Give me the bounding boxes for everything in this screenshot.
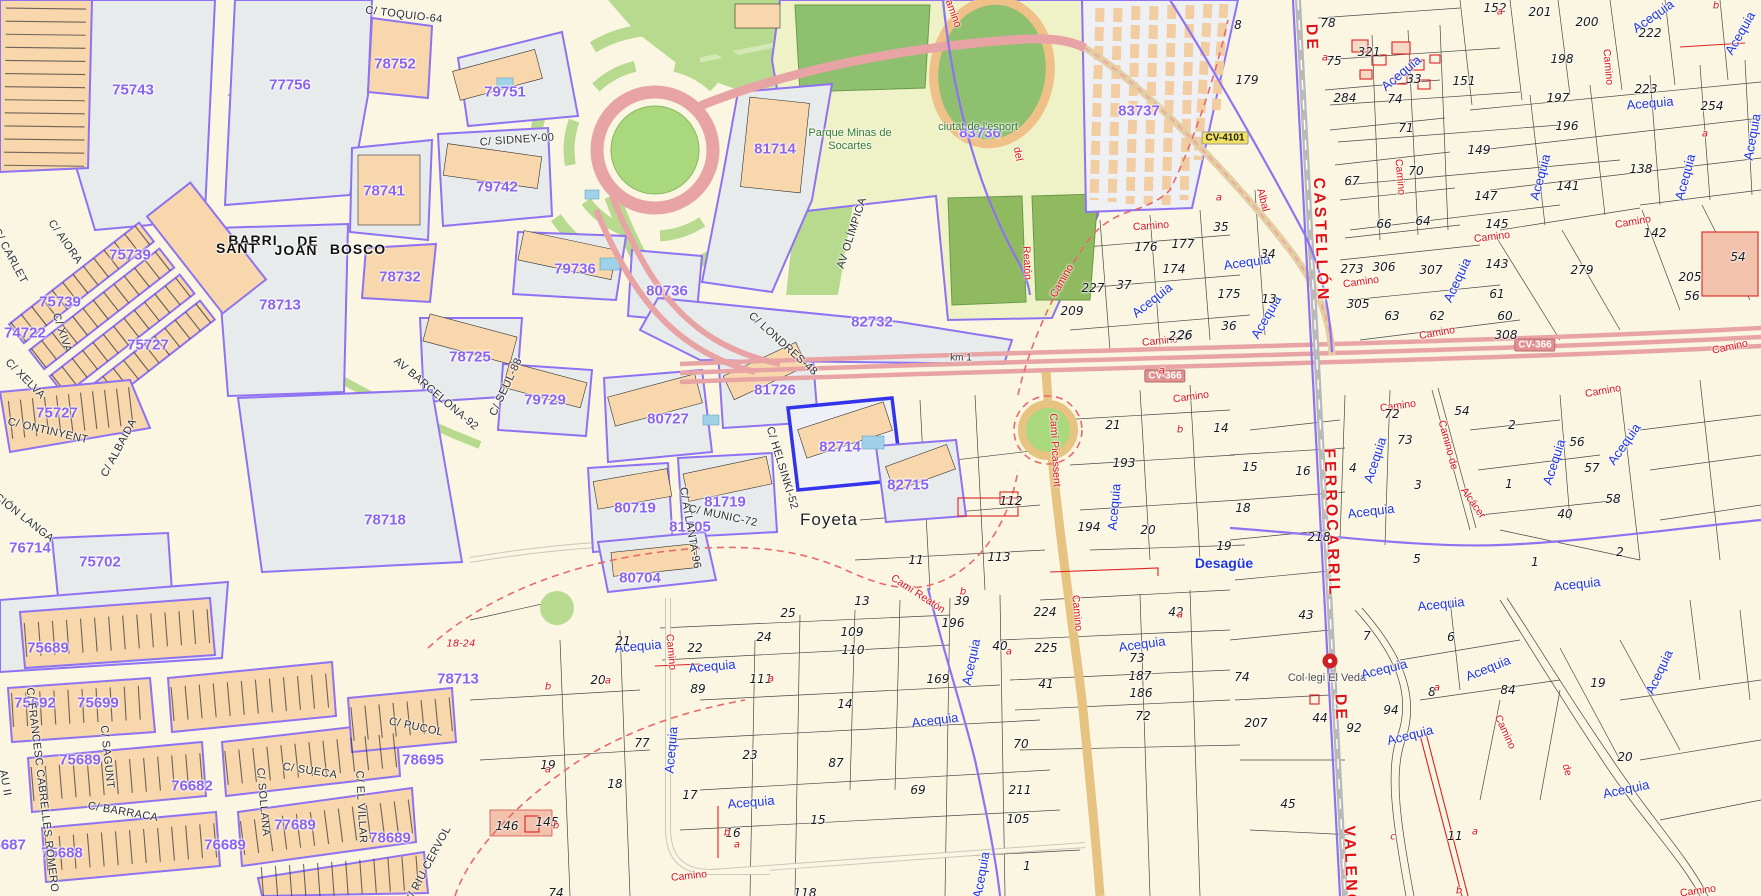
map-canvas[interactable]: 7574377756787527975178741757397573978732…	[0, 0, 1761, 896]
roundabout-green	[611, 106, 699, 194]
map-graphics	[0, 0, 1761, 896]
salmon-building	[1702, 232, 1758, 296]
pitch-2	[948, 196, 1026, 305]
school-icon	[1323, 654, 1338, 669]
small-roundabout	[1022, 404, 1074, 456]
trees-circle	[540, 591, 574, 625]
